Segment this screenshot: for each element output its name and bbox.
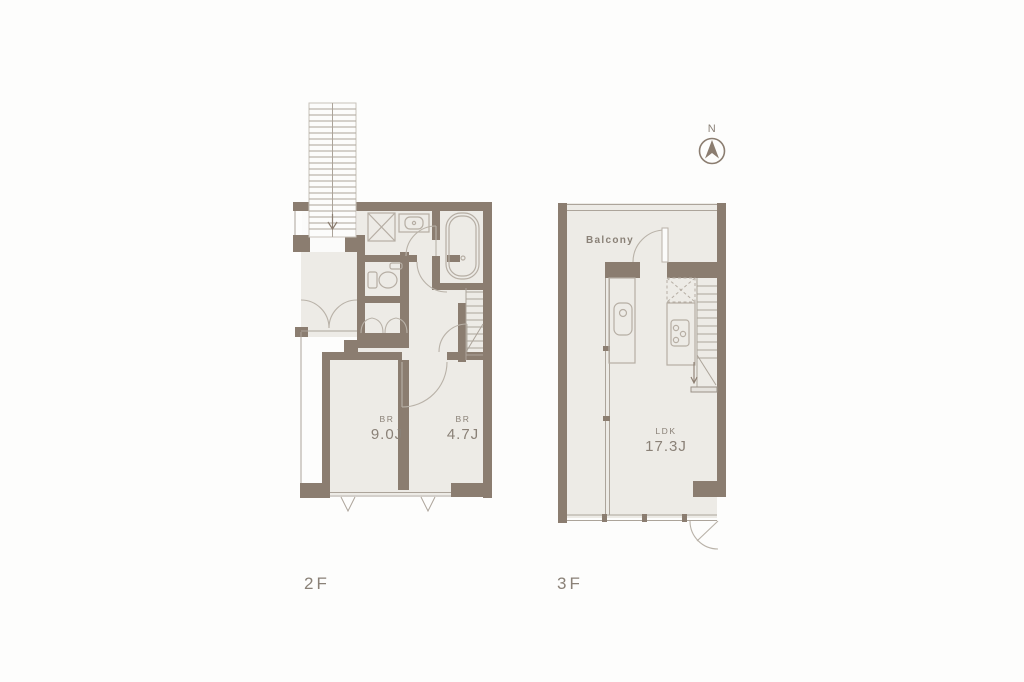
north-label: N [708, 123, 716, 135]
bedroom-2-area: 4.7J [447, 426, 479, 443]
north-arrow-icon [705, 140, 719, 159]
north-indicator: N [700, 123, 725, 164]
floorplan-svg: BR 9.0J BR 4.7J 2F [0, 0, 1024, 682]
balcony-label: Balcony [586, 235, 634, 246]
bedroom-1-type: BR [379, 414, 394, 424]
plan-3f: Balcony [557, 203, 726, 593]
ldk-type: LDK [655, 426, 676, 436]
floor-label-2f: 2F [304, 574, 330, 593]
stair-landing [691, 387, 717, 392]
windows-2f [330, 493, 451, 512]
bedroom-2-type: BR [455, 414, 470, 424]
floor-label-3f: 3F [557, 574, 583, 593]
window-swing-mark [421, 497, 435, 511]
plan-2f: BR 9.0J BR 4.7J 2F [293, 103, 492, 593]
window-swing-mark [341, 497, 355, 511]
ldk-area: 17.3J [645, 438, 687, 455]
exterior-door-3f [690, 521, 718, 549]
floorplan-canvas: BR 9.0J BR 4.7J 2F [0, 0, 1024, 682]
external-staircase [309, 103, 356, 237]
bedroom-1-area: 9.0J [371, 426, 403, 443]
